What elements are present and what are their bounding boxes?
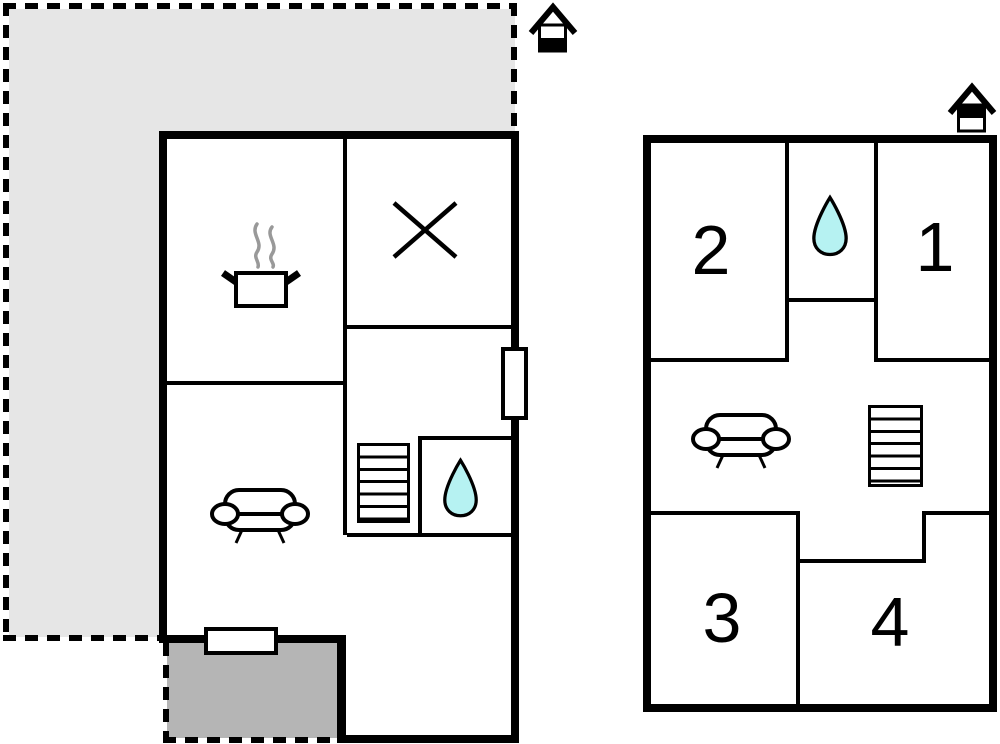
sofa-icon [691,412,791,470]
outer-wall-terrace-right [337,635,346,743]
wall-room4-notch-bottom [796,559,926,563]
wall-room3-room4-divider [796,511,800,704]
water-drop-icon [811,194,849,258]
cooking-pot-icon [220,221,302,309]
plot-area-fill [9,9,159,637]
room-label-1: 1 [916,212,955,282]
wall-room4-notch-right [922,511,926,563]
room-label-3: 3 [703,583,742,653]
room-label-2: 2 [692,215,731,285]
room-label-4: 4 [871,587,910,657]
plot-boundary-bottom [3,635,163,641]
wall-room4-top [922,511,989,515]
wall-room2-bottom [651,358,789,362]
plot-boundary-left [3,3,9,641]
terrace-fill [167,643,339,738]
wall-hall-bottom [347,533,511,537]
outer-wall-left [643,135,651,712]
outer-wall-bottom [643,704,997,712]
water-drop-icon [442,457,479,519]
outer-wall-left [159,131,167,643]
outer-wall-right [989,135,997,712]
wall-bathroom-bottom [785,298,878,302]
stairs-icon [868,405,923,487]
wall-bathroom-top [418,436,511,440]
window-opening [501,347,528,420]
outer-wall-top [159,131,519,139]
wall-kitchen-divider [343,139,347,535]
wall-bathroom-left [785,143,789,360]
upper-floor-plan: 2 1 3 4 [560,0,1000,744]
wall-room3-top [651,511,800,515]
wall-xroom-bottom [347,325,511,329]
wall-room1-bottom [874,358,989,362]
house-icon [947,82,997,133]
floor-plan-canvas: 2 1 3 4 [0,0,1000,744]
cross-icon [390,199,460,261]
outer-wall-top [643,135,997,143]
terrace-boundary-bottom [163,737,346,743]
stairs-icon [357,443,410,523]
entrance-door-opening [204,627,278,655]
terrace-boundary-left [163,643,169,743]
wall-bathroom-right [874,143,878,360]
sofa-icon [210,487,310,545]
wall-kitchen-bottom [167,381,345,385]
plot-boundary-top [3,3,517,9]
outer-wall-right [511,131,519,743]
ground-floor-plan [0,0,560,744]
wall-bathroom-left [418,438,422,535]
plot-boundary-right [511,3,517,135]
outer-wall-bottom-right [337,735,519,743]
